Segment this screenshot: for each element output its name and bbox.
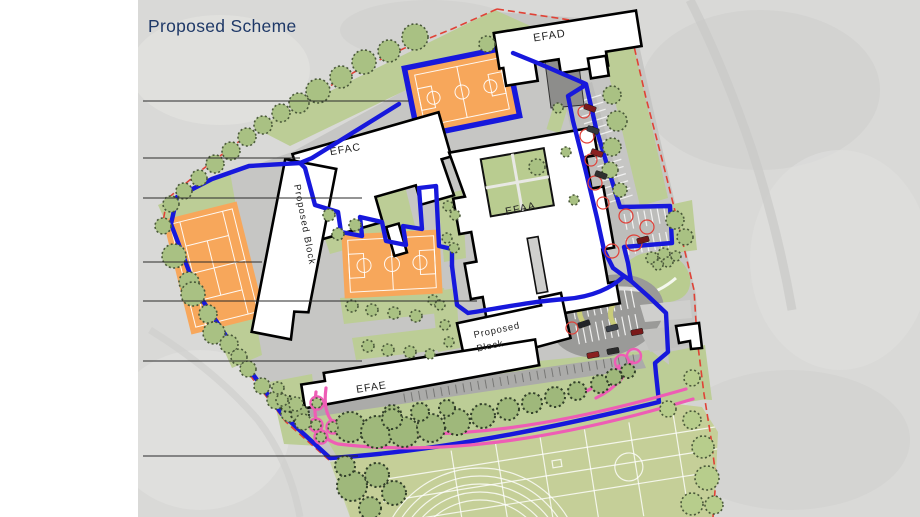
site-plan-page: Proposed Scheme <box>0 0 920 517</box>
page-title: Proposed Scheme <box>148 16 296 37</box>
site-plan: EFAD EFAC EFAA EFAE Proposed Block Propo… <box>0 0 920 517</box>
page-margin <box>0 0 138 517</box>
